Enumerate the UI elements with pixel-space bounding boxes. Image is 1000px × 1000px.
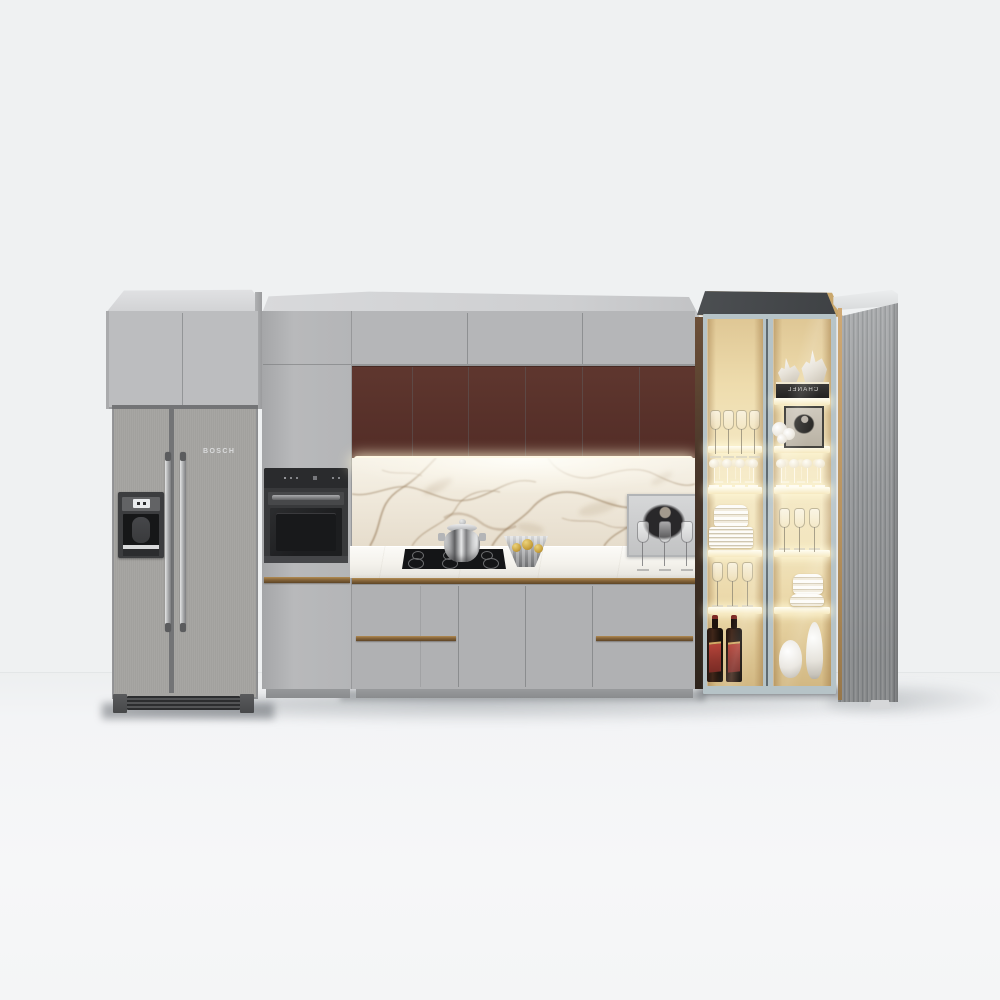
shelf-light [708, 487, 762, 494]
shelf-light [708, 550, 762, 557]
fluted-panel-shading [838, 303, 898, 702]
bowl-stack [714, 505, 748, 527]
wine-glass [742, 562, 753, 607]
accent-door-seam [639, 367, 640, 457]
accent-door-seam [412, 367, 413, 457]
box-label: CHANEL [776, 382, 829, 398]
golden-fruit [534, 544, 543, 553]
dispenser-tray-base [123, 549, 159, 556]
burner-ring [408, 558, 424, 569]
whisky-bottle [707, 628, 723, 682]
oven-control-icons [284, 477, 286, 479]
tall-cabinet-toe-kick [266, 689, 350, 698]
light-spill-edge [838, 308, 842, 700]
oven-handle [272, 495, 340, 500]
bowl-stack [793, 574, 823, 594]
steel-pot [442, 519, 482, 564]
coupe-glass [735, 459, 745, 487]
accent-upper-cabinets [352, 366, 695, 458]
coupe-glass [789, 459, 799, 487]
dispenser-display [133, 499, 150, 508]
fridge-left-foot [113, 694, 127, 713]
base-door-seam [458, 586, 459, 687]
drawer-handle-right [596, 636, 693, 641]
tall-cabinet-seam [263, 364, 351, 365]
wine-glass [712, 562, 723, 607]
coupe-glass [815, 459, 825, 487]
branded-box: CHANEL [776, 382, 829, 398]
wine-glass [637, 521, 649, 571]
wine-glass [710, 410, 721, 458]
shelf-light [774, 607, 830, 614]
coupe-glass [748, 459, 758, 487]
fridge-base-grille [127, 696, 240, 710]
oven-door-window [276, 513, 336, 551]
wine-glass [779, 508, 790, 550]
fridge-right-foot [240, 694, 254, 713]
upper-cabinets [352, 311, 695, 366]
pot-body [444, 529, 480, 562]
plate-stack [709, 527, 753, 548]
shelf-light [774, 398, 830, 405]
fridge-upper-cabinet-top [100, 287, 265, 314]
pot-handle-left [438, 533, 445, 541]
fluted-panel-foot [869, 700, 891, 709]
dispenser-paddle [132, 517, 150, 543]
fridge-left-handle [165, 452, 171, 632]
base-door-seam [592, 586, 593, 687]
wine-glass [681, 521, 693, 571]
accent-door-seam [468, 367, 469, 457]
whisky-bottle [726, 628, 742, 682]
base-toe-kick [356, 689, 693, 698]
coupe-glass [776, 459, 786, 487]
fridge-upper-cabinet-seam [182, 313, 183, 407]
vase-egg [779, 640, 802, 678]
bowl-wide [790, 594, 824, 606]
burner-ring [483, 558, 499, 569]
coupe-glass [722, 459, 732, 487]
door-mullion [766, 319, 768, 686]
shelf-light [774, 487, 830, 494]
upper-cabinet-seam [582, 313, 583, 364]
kitchen-scene: BOSCH [0, 0, 1000, 1000]
golden-fruit [522, 539, 533, 550]
wine-glass [727, 562, 738, 607]
wine-glass [736, 410, 747, 458]
golden-fruit [512, 543, 521, 552]
white-flower [777, 434, 787, 444]
upper-cabinet-seam [467, 313, 468, 364]
shelf-light [708, 607, 762, 614]
wine-glass [809, 508, 820, 550]
wine-glass [723, 410, 734, 458]
shelf-light [774, 550, 830, 557]
base-door-seam [525, 586, 526, 687]
oven-bottom-trim [264, 556, 348, 563]
coupe-glass [709, 459, 719, 487]
tall-cabinet-handle-strip [264, 577, 350, 583]
accent-door-seam [525, 367, 526, 457]
accent-door-seam [582, 367, 583, 457]
filler-panel [695, 317, 703, 689]
fridge-right-handle [180, 452, 186, 632]
fridge-brand-label: BOSCH [203, 447, 233, 457]
wine-glass [659, 521, 671, 571]
oven-control-panel [264, 468, 348, 488]
wine-glass [794, 508, 805, 550]
coupe-glass [802, 459, 812, 487]
cabinet-photo-frame [784, 406, 824, 448]
wine-glass [749, 410, 760, 458]
drawer-handle-left [356, 636, 456, 641]
dispenser-display-icons [137, 502, 140, 505]
pot-handle-right [479, 533, 486, 541]
